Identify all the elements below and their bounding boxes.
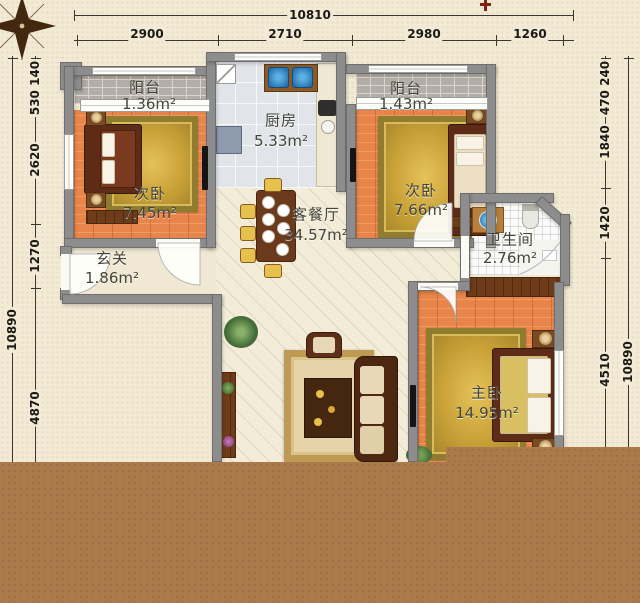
- dim-tick: [573, 10, 574, 21]
- room-area-bedroom-right: 7.66m²: [394, 201, 448, 219]
- dim-top-seg-1: 2900: [128, 27, 165, 41]
- dim-left-seg-2: 140: [28, 61, 42, 86]
- floor-plan-canvas: 阳台 1.36m² 厨房 5.33m² 阳台 1.43m² 次卧 7.45m² …: [0, 0, 640, 603]
- dim-right-seg-3: 1840: [598, 123, 612, 160]
- dim-tick: [352, 35, 353, 46]
- dim-tick: [31, 288, 41, 289]
- dim-top-total: 10810: [287, 8, 333, 22]
- room-label-bedroom-left: 次卧: [134, 183, 166, 204]
- dim-top-seg-2: 2710: [266, 27, 303, 41]
- dim-right-total: 10890: [621, 339, 635, 385]
- room-area-balcony-right: 1.43m²: [379, 95, 433, 113]
- dim-top-seg-3: 2980: [405, 27, 442, 41]
- master-door-arc: [420, 287, 456, 323]
- red-cross-horizontal: [480, 3, 491, 6]
- dim-top-seg-4: 1260: [511, 27, 548, 41]
- room-label-living-dining: 客餐厅: [292, 204, 340, 225]
- dim-tick: [74, 10, 75, 21]
- tv-icon: [410, 385, 416, 427]
- room-label-bathroom: 卫生间: [486, 229, 534, 250]
- dim-line-left-total: [12, 56, 13, 486]
- room-label-entry: 玄关: [96, 248, 128, 269]
- room-area-bathroom: 2.76m²: [483, 249, 537, 267]
- room-label-master: 主卧: [471, 382, 503, 403]
- dim-right-seg-5: 4510: [598, 351, 612, 388]
- dim-right-seg-1: 470: [598, 90, 612, 115]
- dim-tick: [77, 35, 78, 46]
- dim-tick: [218, 35, 219, 46]
- dim-left-seg-5: 4870: [28, 389, 42, 426]
- room-area-bedroom-left: 7.45m²: [123, 204, 177, 222]
- room-area-kitchen: 5.33m²: [254, 132, 308, 150]
- dim-tick: [563, 35, 564, 46]
- dim-left-total: 10890: [5, 307, 19, 353]
- tv-icon: [202, 146, 208, 190]
- room-area-living-dining: 34.57m²: [284, 226, 348, 244]
- dim-right-seg-1-2: 470 240: [598, 59, 612, 117]
- bedroom-left-door-arc: [158, 243, 200, 285]
- dim-left-seg-1: 530: [28, 90, 42, 115]
- dim-tick: [624, 58, 634, 59]
- tv-icon: [350, 148, 356, 182]
- room-label-kitchen: 厨房: [265, 110, 297, 131]
- dim-tick: [31, 224, 41, 225]
- dim-tick: [601, 258, 611, 259]
- room-area-entry: 1.86m²: [85, 269, 139, 287]
- dim-left-seg-3: 2620: [28, 141, 42, 178]
- dim-left-seg-1-2: 530 140: [28, 59, 42, 117]
- dim-line-right-segments: [605, 56, 606, 486]
- room-area-balcony-left: 1.36m²: [122, 95, 176, 113]
- dim-tick: [601, 188, 611, 189]
- dim-tick: [496, 35, 497, 46]
- bottom-cover-band: [0, 462, 640, 603]
- room-area-master: 14.95m²: [455, 404, 519, 422]
- dim-line-right-total: [628, 56, 629, 486]
- red-cross-marker: [480, 0, 491, 11]
- dim-right-seg-2: 240: [598, 61, 612, 86]
- compass-rose-icon: [0, 0, 58, 60]
- dim-right-seg-4: 1420: [598, 204, 612, 241]
- dim-left-seg-4: 1270: [28, 237, 42, 274]
- room-label-bedroom-right: 次卧: [405, 180, 437, 201]
